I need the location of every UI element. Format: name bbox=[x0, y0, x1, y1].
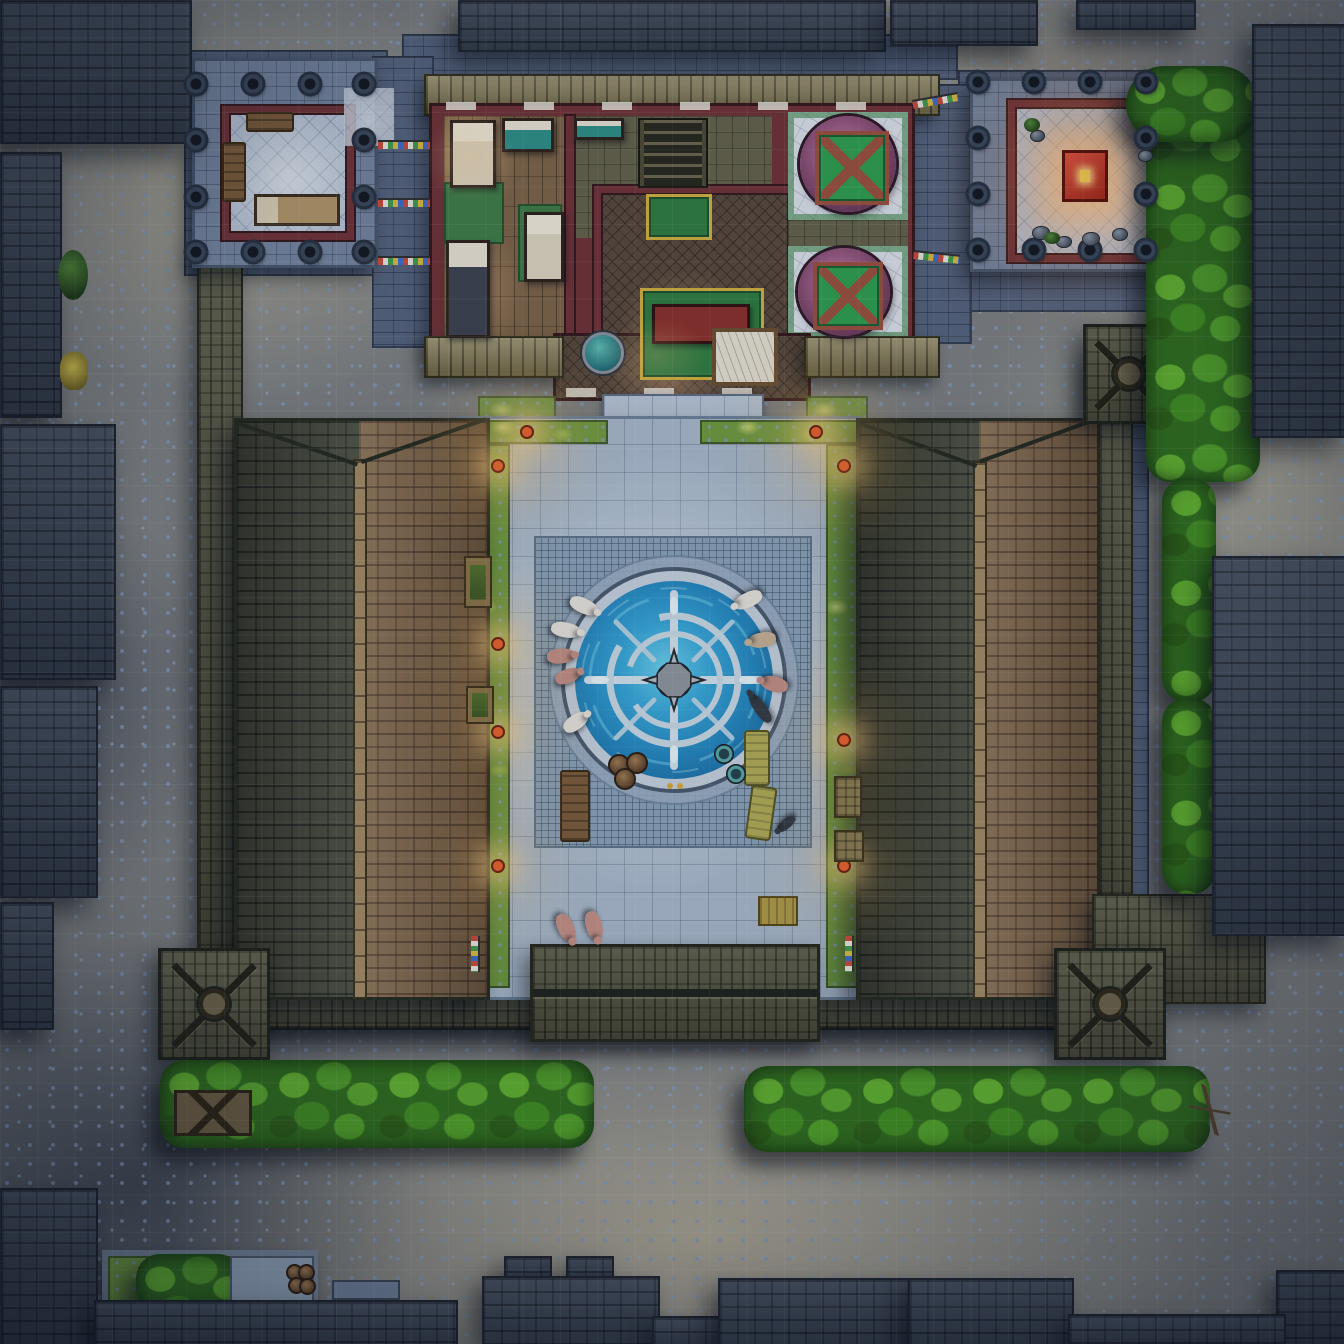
crate bbox=[834, 776, 862, 818]
stone-pillar bbox=[969, 73, 988, 92]
prayer-flags bbox=[845, 936, 854, 972]
bench-wood bbox=[222, 142, 246, 202]
crate bbox=[834, 830, 864, 862]
prayer-flags bbox=[378, 256, 430, 265]
planter bbox=[464, 556, 492, 608]
animal-token-pink bbox=[582, 909, 605, 942]
animal-token-dark bbox=[745, 691, 774, 726]
battlemap bbox=[0, 0, 1344, 1344]
stone-pillar bbox=[187, 188, 206, 207]
animal-token-pink bbox=[546, 647, 575, 664]
lantern bbox=[491, 637, 505, 651]
stone-pillar bbox=[969, 129, 988, 148]
stone-pillar bbox=[187, 243, 206, 262]
plant bbox=[1044, 232, 1060, 244]
stone-pillar bbox=[1137, 241, 1156, 260]
prayer-flags bbox=[471, 936, 480, 972]
stone-pillar bbox=[1137, 129, 1156, 148]
lantern bbox=[491, 859, 505, 873]
prayer-flags bbox=[912, 92, 959, 109]
lantern bbox=[837, 733, 851, 747]
animal-token-white bbox=[560, 708, 592, 736]
stone-pillar bbox=[969, 185, 988, 204]
stone-pillar bbox=[355, 243, 374, 262]
rock bbox=[1138, 150, 1153, 162]
bench-moss bbox=[744, 784, 777, 841]
lantern bbox=[837, 459, 851, 473]
animal-token-dark bbox=[774, 813, 797, 835]
stone-pillar bbox=[969, 241, 988, 260]
animal-token-pink bbox=[759, 673, 790, 695]
stone-pillar bbox=[1025, 73, 1044, 92]
bench-wood bbox=[560, 770, 590, 842]
pot bbox=[614, 768, 636, 790]
bench-stone bbox=[332, 1280, 400, 1300]
rock bbox=[1112, 228, 1128, 241]
pot-ring bbox=[726, 764, 746, 784]
stone-pillar bbox=[301, 243, 320, 262]
stone-pillar bbox=[244, 243, 263, 262]
prayer-flags bbox=[378, 140, 430, 149]
stone-pillar bbox=[355, 188, 374, 207]
plant bbox=[58, 250, 88, 300]
rock bbox=[1082, 232, 1100, 246]
lantern bbox=[491, 725, 505, 739]
stone-pillar bbox=[1025, 241, 1044, 260]
lantern bbox=[809, 425, 823, 439]
bench-moss bbox=[744, 730, 770, 786]
plant bbox=[1024, 118, 1040, 132]
branch bbox=[1183, 1083, 1236, 1136]
animal-token-pink bbox=[552, 911, 579, 945]
prayer-flags bbox=[913, 250, 960, 264]
stone-pillar bbox=[187, 131, 206, 150]
token-layer bbox=[0, 0, 1344, 1344]
planter bbox=[466, 686, 494, 724]
plant-yellow bbox=[60, 352, 88, 390]
stone-pillar bbox=[1137, 185, 1156, 204]
bench-wood bbox=[246, 112, 294, 132]
animal-token-white bbox=[550, 620, 582, 640]
stone-pillar bbox=[1137, 73, 1156, 92]
stone-pillar bbox=[355, 75, 374, 94]
crate-yellow bbox=[758, 896, 798, 926]
stone-pillar bbox=[244, 75, 263, 94]
animal-token-pink bbox=[553, 665, 582, 687]
lantern bbox=[520, 425, 534, 439]
prayer-flags bbox=[378, 198, 430, 207]
pot bbox=[299, 1278, 316, 1295]
pot-ring bbox=[714, 744, 734, 764]
animal-token-white bbox=[731, 587, 765, 613]
stone-pillar bbox=[1081, 73, 1100, 92]
crate-street bbox=[174, 1090, 252, 1136]
animal-token-white bbox=[567, 593, 601, 619]
stone-pillar bbox=[301, 75, 320, 94]
animal-token-tan bbox=[747, 630, 777, 650]
lantern bbox=[491, 459, 505, 473]
stone-pillar bbox=[355, 131, 374, 150]
stone-pillar bbox=[187, 75, 206, 94]
